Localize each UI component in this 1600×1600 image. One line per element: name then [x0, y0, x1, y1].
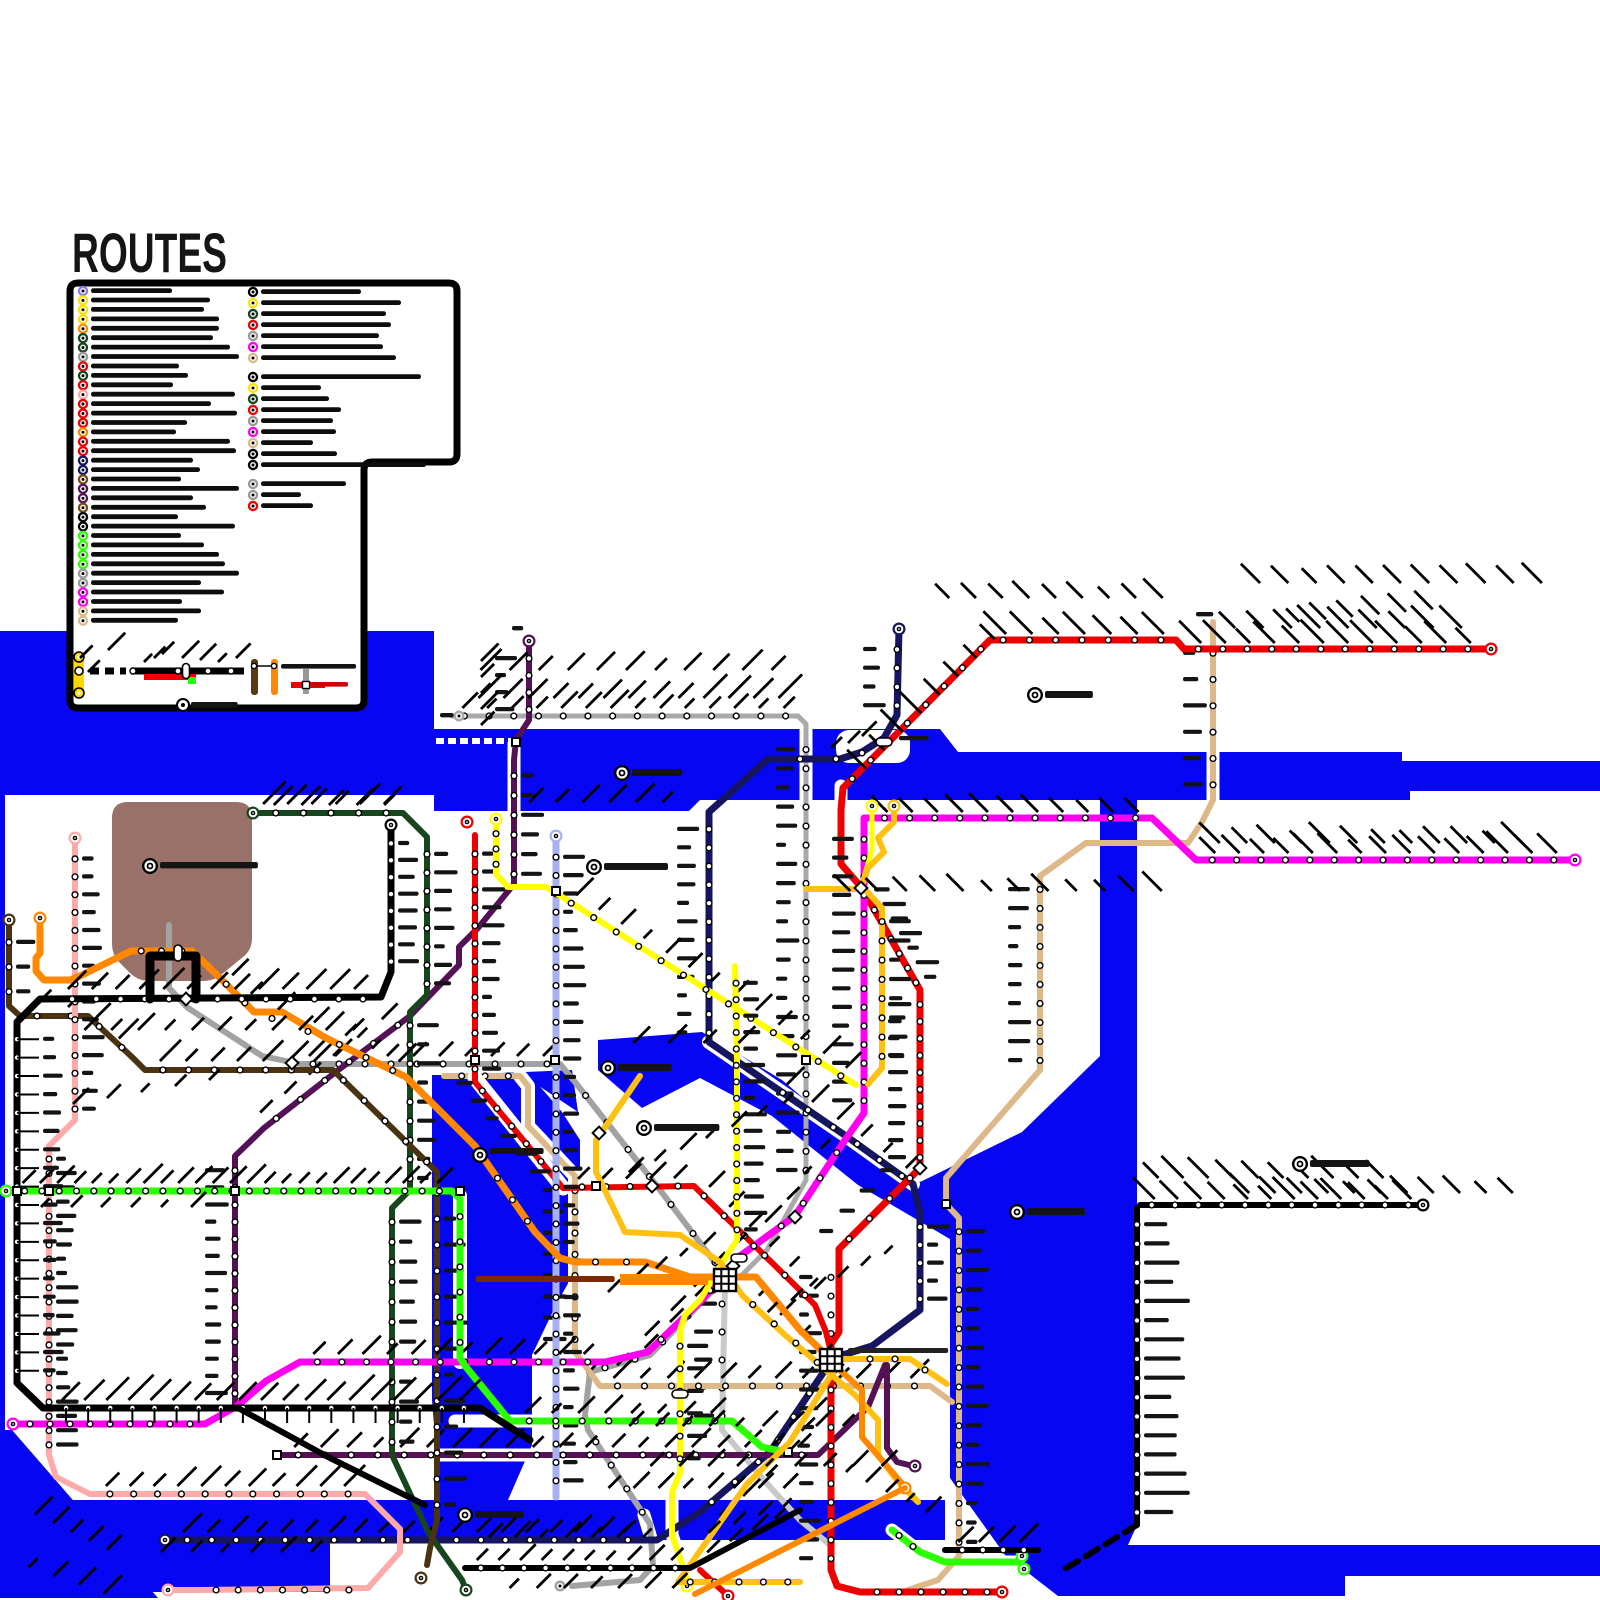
svg-text:ROUTES: ROUTES: [72, 221, 227, 284]
